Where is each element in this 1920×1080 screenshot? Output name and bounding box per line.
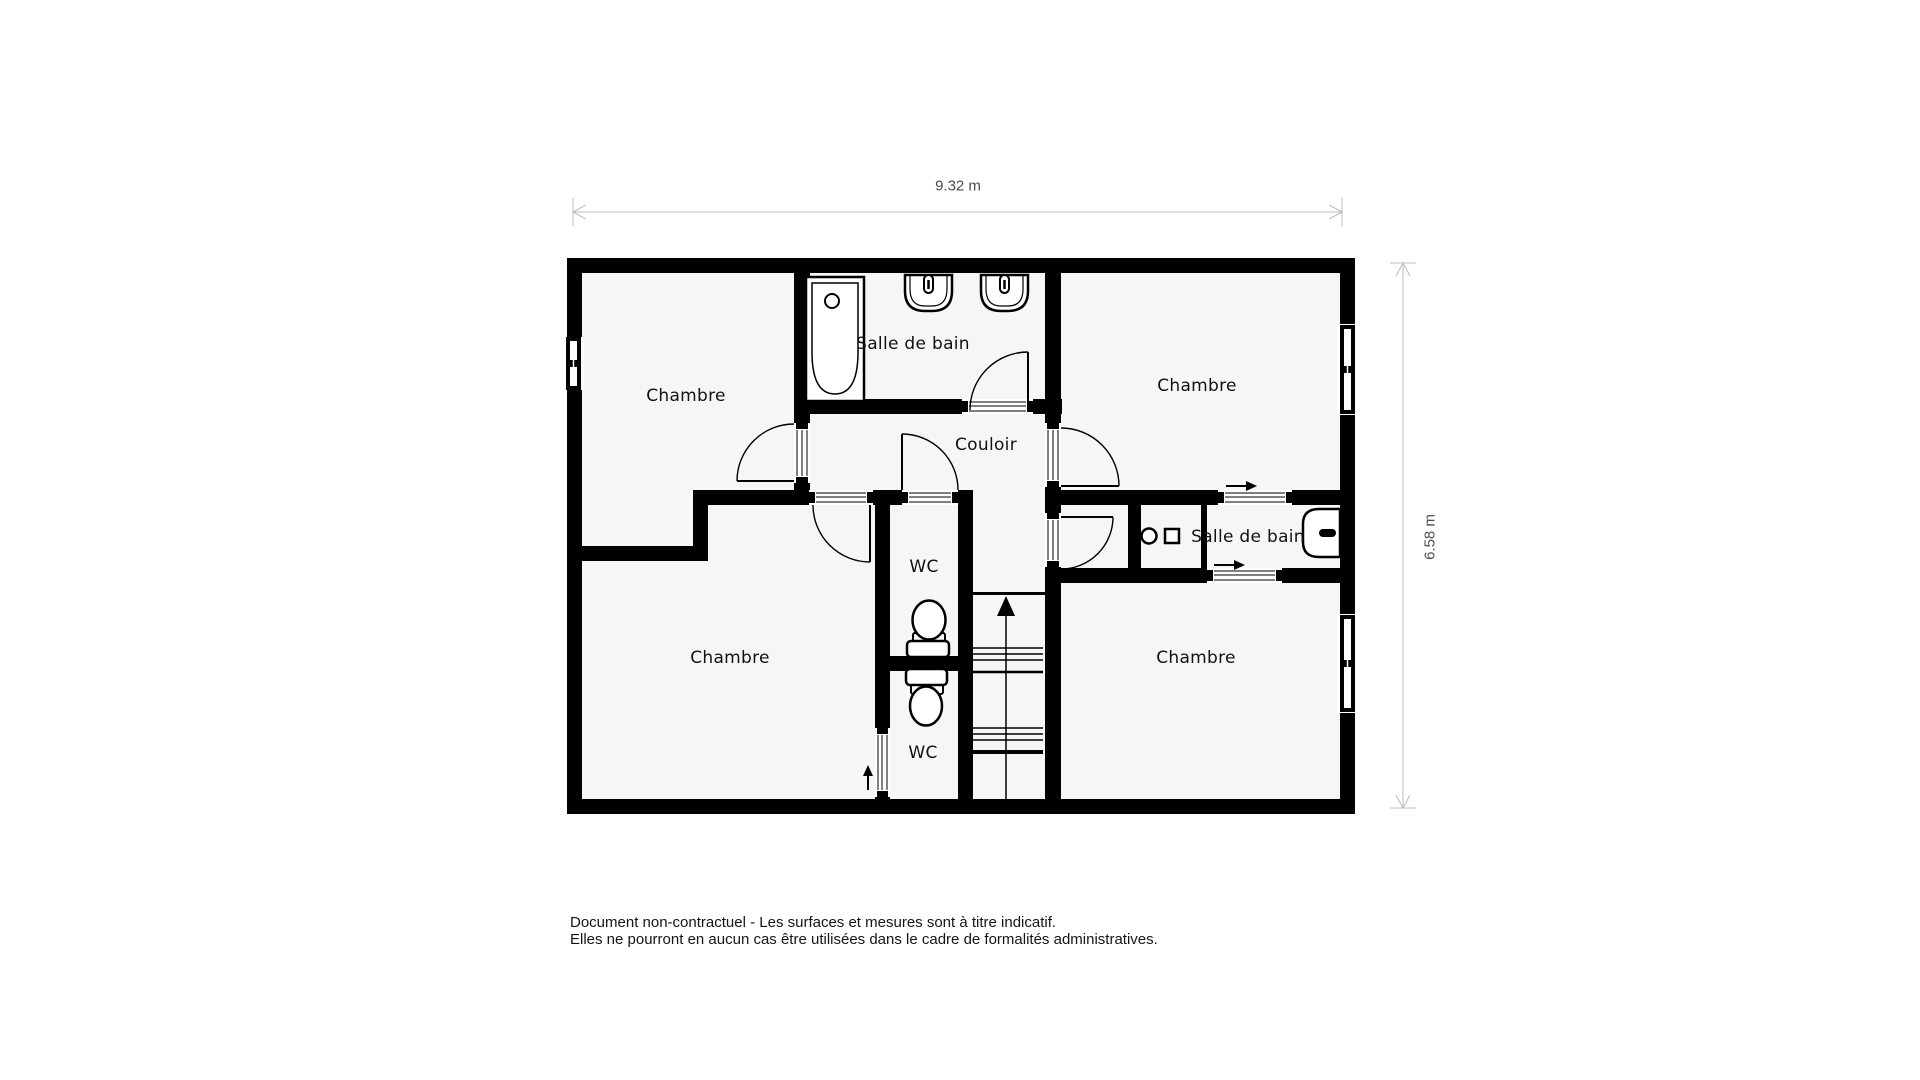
- room-label-wc-bas: WC: [908, 743, 937, 763]
- floor-plan-page: Chambre Salle de bain Chambre Couloir WC…: [0, 0, 1920, 1080]
- washbasin-icon: [1303, 509, 1340, 557]
- window-icon-left: [565, 337, 584, 390]
- disclaimer-text: Document non-contractuel - Les surfaces …: [570, 914, 1158, 948]
- disclaimer-line-2: Elles ne pourront en aucun cas être util…: [570, 931, 1158, 948]
- disclaimer-line-1: Document non-contractuel - Les surfaces …: [570, 914, 1158, 931]
- dimension-width-label: 9.32 m: [935, 178, 981, 195]
- room-label-chambre-haut-gauche: Chambre: [646, 386, 726, 406]
- sink-icon: [981, 275, 1028, 311]
- room-label-chambre-haut-droite: Chambre: [1157, 376, 1237, 396]
- dimension-height-label: 6.58 m: [1422, 514, 1439, 560]
- room-label-chambre-bas-droite: Chambre: [1156, 648, 1236, 668]
- room-label-salle-de-bain-haut: Salle de bain: [856, 334, 970, 354]
- room-label-wc-haut: WC: [909, 557, 938, 577]
- room-label-couloir: Couloir: [955, 435, 1017, 455]
- window-icon-right-top: [1337, 324, 1356, 415]
- dimension-line-vertical: [1390, 263, 1416, 808]
- dimension-line-horizontal: [573, 198, 1342, 226]
- window-icon-right-bottom: [1337, 614, 1356, 713]
- room-label-salle-de-bain-droite: Salle de bain: [1191, 527, 1305, 547]
- room-label-chambre-bas-gauche: Chambre: [690, 648, 770, 668]
- sink-icon: [905, 275, 952, 311]
